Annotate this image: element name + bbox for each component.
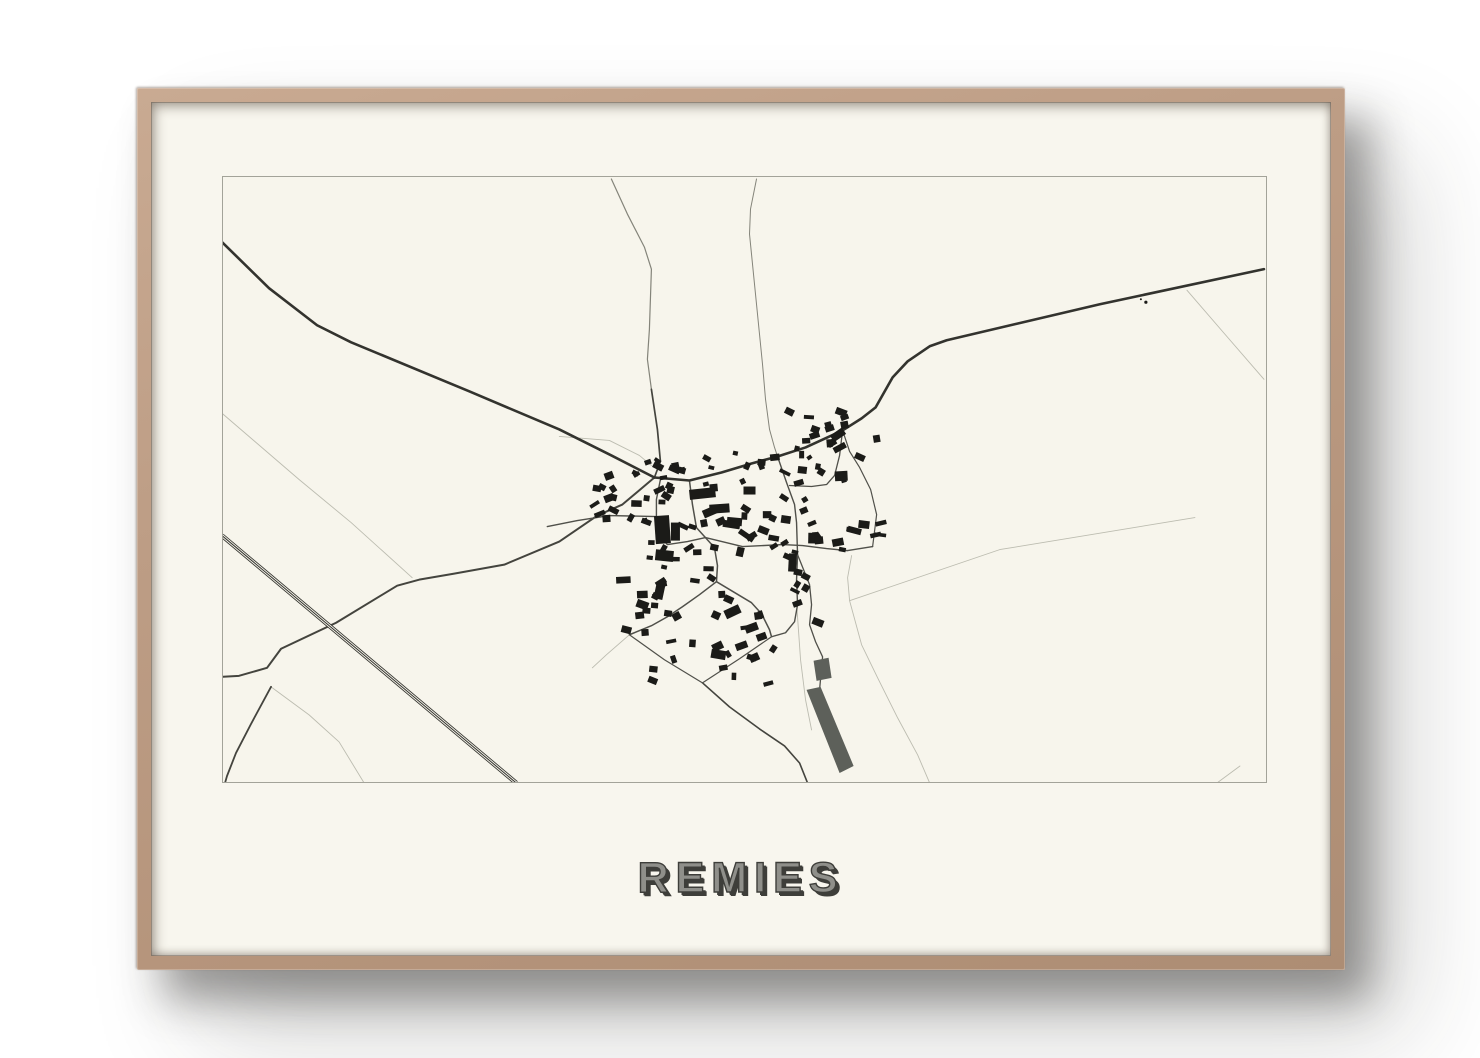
road-street-east-west bbox=[705, 538, 872, 551]
building bbox=[647, 676, 658, 685]
building bbox=[826, 439, 832, 447]
road-highway-northwest bbox=[223, 241, 654, 477]
building bbox=[769, 644, 778, 653]
building bbox=[801, 572, 811, 581]
building bbox=[835, 407, 848, 417]
building bbox=[799, 451, 804, 458]
building bbox=[801, 496, 808, 503]
road-faint-sw-branch bbox=[271, 687, 364, 782]
map-image bbox=[222, 176, 1267, 783]
building bbox=[763, 680, 774, 687]
building bbox=[735, 640, 749, 651]
building bbox=[710, 543, 719, 551]
building bbox=[781, 515, 792, 524]
building bbox=[802, 438, 810, 444]
building bbox=[693, 549, 702, 555]
building bbox=[708, 465, 715, 470]
building bbox=[689, 639, 696, 647]
building bbox=[710, 649, 726, 660]
building bbox=[873, 435, 881, 443]
building bbox=[648, 540, 655, 545]
building bbox=[702, 454, 711, 462]
building bbox=[661, 564, 667, 569]
building bbox=[770, 454, 780, 462]
building bbox=[589, 500, 600, 509]
road-road-north2 bbox=[750, 179, 778, 456]
building bbox=[631, 500, 642, 507]
building bbox=[779, 468, 791, 476]
road-faint-east-field bbox=[850, 518, 1195, 601]
building bbox=[683, 543, 694, 553]
building bbox=[718, 591, 725, 598]
building bbox=[700, 519, 708, 528]
building bbox=[637, 591, 648, 599]
building bbox=[793, 568, 802, 576]
building bbox=[846, 527, 853, 533]
building bbox=[735, 546, 744, 557]
building bbox=[706, 573, 716, 582]
field-strip-long bbox=[807, 687, 854, 773]
building bbox=[711, 610, 722, 620]
building bbox=[621, 625, 632, 634]
building bbox=[807, 520, 817, 527]
building bbox=[627, 513, 636, 523]
building bbox=[616, 576, 631, 583]
poster-title: REMIES bbox=[151, 854, 1331, 903]
building bbox=[609, 484, 618, 493]
building bbox=[719, 664, 728, 671]
building bbox=[739, 478, 746, 485]
building bbox=[839, 547, 847, 553]
building bbox=[703, 566, 713, 571]
product-photo: REMIES bbox=[0, 0, 1480, 1058]
building bbox=[858, 520, 870, 529]
field-patch-small bbox=[814, 658, 832, 681]
building bbox=[643, 495, 650, 502]
road-faint-nw-boundary bbox=[559, 436, 651, 465]
building bbox=[769, 542, 778, 550]
village-map-svg bbox=[223, 177, 1266, 782]
building bbox=[642, 607, 650, 614]
building bbox=[804, 415, 814, 420]
road-faint-ne-branch bbox=[1187, 290, 1264, 379]
building bbox=[664, 610, 673, 617]
building bbox=[784, 407, 795, 417]
building bbox=[666, 639, 677, 645]
building bbox=[875, 520, 887, 527]
building-dot bbox=[1140, 298, 1142, 300]
building bbox=[723, 604, 741, 619]
building bbox=[779, 493, 789, 502]
building bbox=[641, 629, 649, 636]
building bbox=[654, 515, 671, 544]
building bbox=[757, 525, 770, 535]
building bbox=[811, 617, 824, 628]
road-road-south-exit bbox=[702, 683, 807, 782]
building bbox=[709, 484, 718, 492]
building bbox=[658, 499, 665, 504]
building bbox=[799, 506, 808, 514]
building bbox=[806, 454, 812, 460]
road-highway-east bbox=[654, 269, 1264, 480]
building bbox=[793, 580, 801, 589]
building bbox=[649, 666, 658, 673]
road-street-west bbox=[547, 516, 656, 527]
poster-paper: REMIES bbox=[151, 102, 1331, 956]
building bbox=[790, 587, 800, 594]
road-faint-corner-br bbox=[1217, 766, 1240, 782]
building bbox=[651, 602, 659, 608]
poster-frame: REMIES bbox=[137, 88, 1345, 970]
road-faint-se-track bbox=[848, 556, 930, 782]
road-parcel-east-side bbox=[702, 637, 771, 683]
building bbox=[832, 537, 845, 547]
building bbox=[670, 655, 677, 664]
building bbox=[703, 481, 710, 487]
building bbox=[743, 487, 755, 495]
building bbox=[797, 466, 807, 474]
building bbox=[732, 673, 737, 680]
building bbox=[792, 599, 803, 608]
road-faint-west-track bbox=[223, 412, 412, 577]
building bbox=[604, 471, 615, 481]
road-road-sw bbox=[223, 477, 654, 676]
road-faint-s-village bbox=[592, 635, 629, 668]
building bbox=[733, 451, 739, 456]
building bbox=[690, 578, 700, 584]
building-dot bbox=[1144, 301, 1147, 304]
road-road-north-upper bbox=[611, 179, 651, 389]
building bbox=[602, 515, 610, 523]
building bbox=[646, 555, 653, 560]
building bbox=[780, 539, 789, 547]
building bbox=[768, 534, 779, 541]
building bbox=[741, 512, 747, 520]
building bbox=[673, 557, 680, 561]
railway-gap bbox=[223, 536, 516, 782]
building bbox=[814, 536, 823, 544]
road-road-sw-branch bbox=[225, 687, 271, 782]
